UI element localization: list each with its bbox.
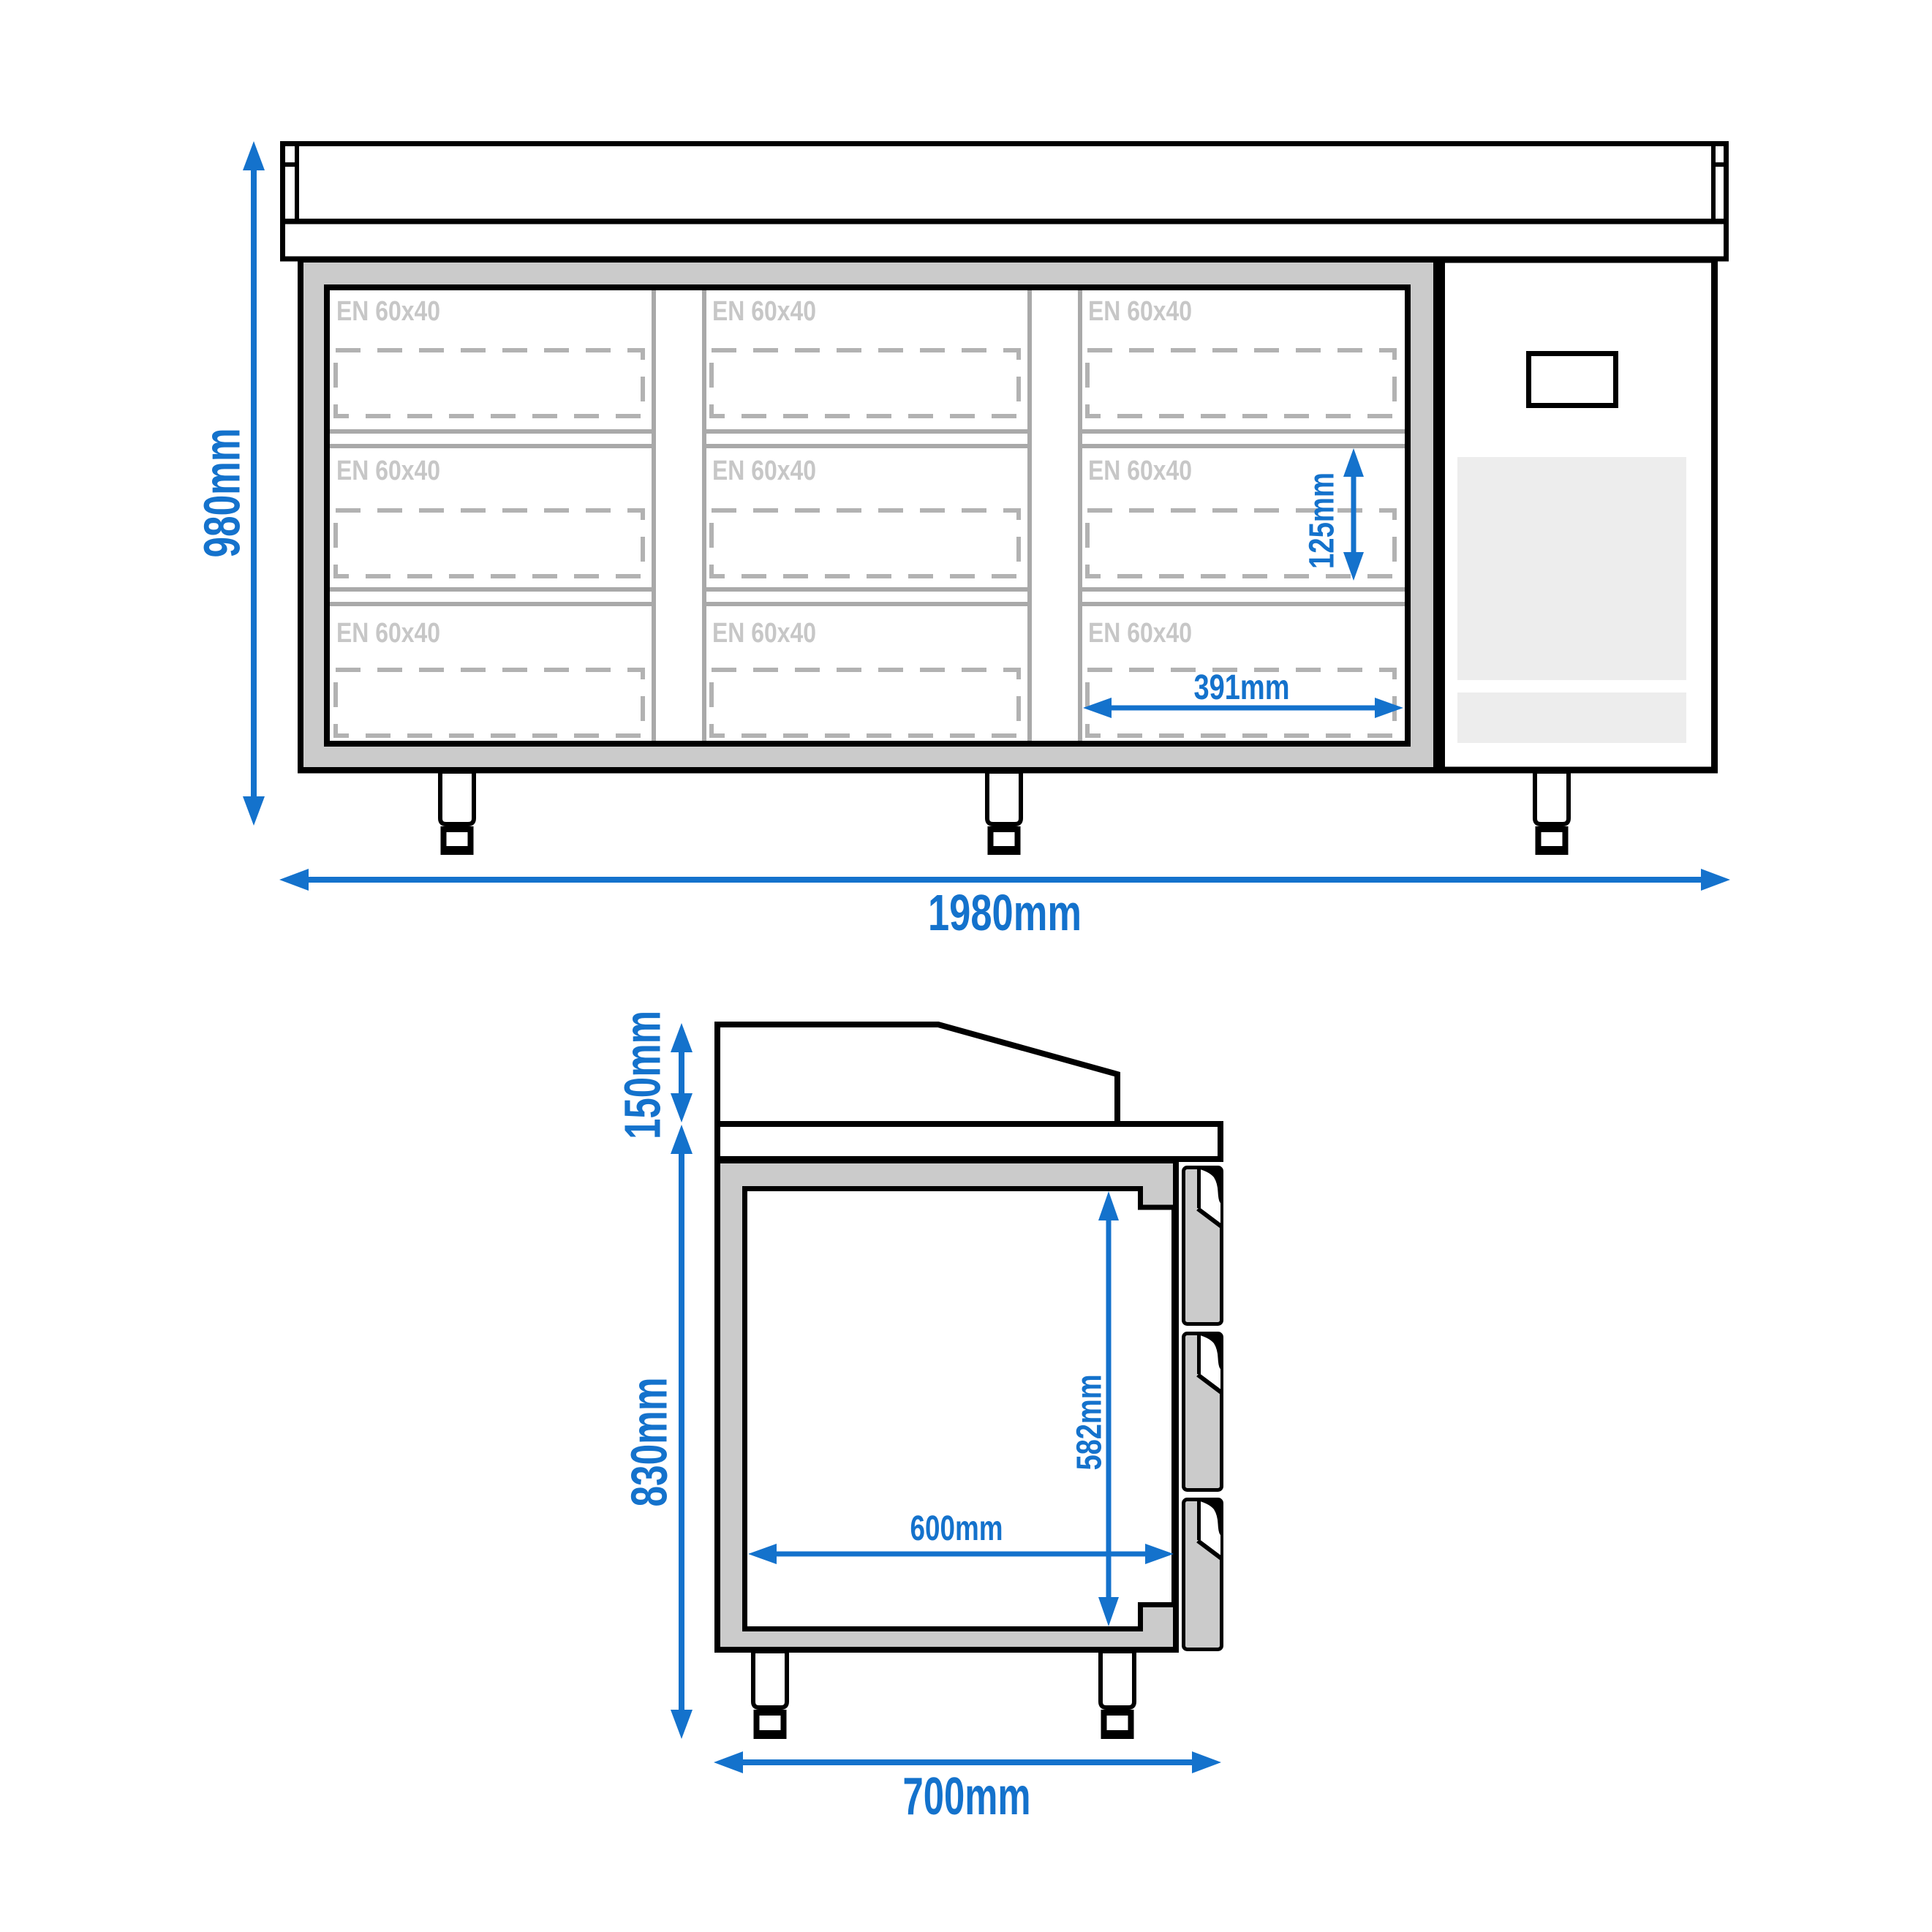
svg-text:391mm: 391mm bbox=[1194, 668, 1290, 707]
svg-text:700mm: 700mm bbox=[903, 1767, 1031, 1826]
svg-text:980mm: 980mm bbox=[193, 429, 250, 558]
svg-text:125mm: 125mm bbox=[1303, 472, 1342, 569]
svg-text:582mm: 582mm bbox=[1071, 1375, 1109, 1471]
svg-text:EN 60x40: EN 60x40 bbox=[336, 618, 440, 649]
svg-text:EN 60x40: EN 60x40 bbox=[712, 618, 816, 649]
svg-text:EN 60x40: EN 60x40 bbox=[336, 456, 440, 486]
svg-text:830mm: 830mm bbox=[620, 1378, 677, 1507]
svg-text:EN 60x40: EN 60x40 bbox=[1088, 296, 1192, 327]
svg-text:EN 60x40: EN 60x40 bbox=[1088, 618, 1192, 649]
svg-text:EN 60x40: EN 60x40 bbox=[1088, 456, 1192, 486]
svg-text:EN 60x40: EN 60x40 bbox=[336, 296, 440, 327]
svg-text:600mm: 600mm bbox=[910, 1509, 1003, 1548]
svg-text:150mm: 150mm bbox=[614, 1011, 671, 1139]
svg-text:1980mm: 1980mm bbox=[928, 884, 1082, 941]
svg-text:EN 60x40: EN 60x40 bbox=[712, 456, 816, 486]
svg-text:EN 60x40: EN 60x40 bbox=[712, 296, 816, 327]
